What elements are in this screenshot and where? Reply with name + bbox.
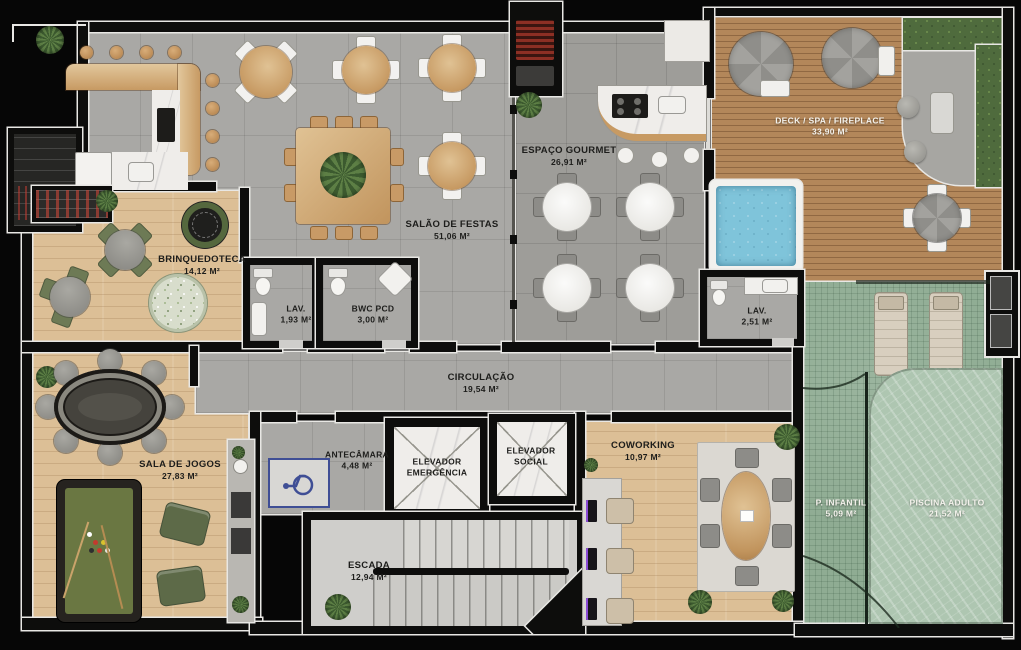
meeting-chair — [735, 448, 759, 468]
room-area: 5,09 M² — [816, 508, 867, 519]
room-label-lav-1: LAV. 1,93 M² — [281, 303, 312, 324]
floor-plan: SALÃO DE FESTAS 51,06 M² ESPAÇO GOURMET … — [0, 0, 1021, 650]
plant — [96, 190, 118, 212]
partition-post — [510, 235, 517, 244]
cabinet — [664, 20, 710, 62]
plant — [516, 92, 542, 118]
room-area: 51,06 M² — [406, 231, 499, 242]
billiard-ball — [89, 548, 94, 553]
chair — [310, 226, 328, 240]
plant — [36, 26, 64, 54]
monitor — [586, 500, 597, 522]
chair — [360, 226, 378, 240]
room-label-deck-spa-fireplace: DECK / SPA / FIREPLACE 33,90 M² — [775, 115, 885, 136]
cooktop — [157, 108, 175, 142]
umbrella — [822, 28, 882, 88]
meeting-table — [722, 472, 770, 560]
hedge — [976, 45, 1006, 187]
room-area: 14,12 M² — [158, 266, 246, 277]
wall — [190, 346, 198, 386]
room-label-elevador-emergencia: ELEVADOR EMERGÊNCIA — [400, 456, 474, 477]
pool-edge-curves — [803, 360, 1003, 628]
room-label-circulacao: CIRCULAÇÃO 19,54 M² — [448, 372, 515, 395]
door-opening — [279, 340, 303, 348]
shelf-box — [231, 492, 251, 518]
stool — [652, 152, 667, 167]
bar-stool — [140, 46, 153, 59]
room-area: 27,83 M² — [139, 471, 221, 482]
handrail — [373, 568, 569, 575]
room-label-espaco-gourmet: ESPAÇO GOURMET 26,91 M² — [522, 145, 617, 168]
room-label-piscina-adulto: PISCINA ADULTO 21,52 M² — [909, 497, 984, 518]
dining-table — [543, 183, 591, 231]
room-name: ESCADA — [348, 560, 390, 572]
papers — [740, 510, 754, 522]
chair — [390, 184, 404, 202]
room-name: SALÃO DE FESTAS — [406, 219, 499, 231]
burner — [634, 98, 641, 105]
ball-pit — [149, 274, 207, 332]
room-name: COWORKING — [611, 440, 675, 452]
plant — [232, 596, 249, 613]
vanity-sink — [251, 302, 267, 336]
room-name: SALA DE JOGOS — [139, 459, 221, 471]
wall — [22, 618, 262, 630]
room-label-bwc-pcd: BWC PCD 3,00 M² — [352, 303, 395, 324]
room-label-brinquedoteca: BRINQUEDOTECA 14,12 M² — [158, 254, 246, 277]
burner — [617, 108, 624, 115]
table-top — [913, 194, 961, 242]
deck-edge-line — [856, 280, 990, 284]
plant — [325, 594, 351, 620]
billiard-ball — [97, 548, 102, 553]
room-name: BWC PCD — [352, 303, 395, 314]
bench — [930, 92, 954, 134]
toilet — [328, 268, 348, 296]
room-label-elevador-social: ELEVADOR SOCIAL — [494, 445, 568, 466]
plant — [772, 590, 794, 612]
wall — [612, 412, 802, 422]
planter — [990, 276, 1012, 310]
meeting-chair — [700, 478, 720, 502]
dining-table — [626, 183, 674, 231]
room-name: LAV. — [281, 303, 312, 314]
room-name: DECK / SPA / FIREPLACE — [775, 115, 885, 126]
table-top — [626, 183, 674, 231]
stair-flight-upper — [403, 520, 569, 568]
room-area: 19,54 M² — [448, 384, 515, 395]
room-name: ELEVADOR EMERGÊNCIA — [400, 456, 474, 477]
deck-table — [913, 194, 961, 242]
bar-stool — [80, 46, 93, 59]
chair — [390, 148, 404, 166]
room-area: 26,91 M² — [522, 157, 617, 168]
sink — [762, 279, 788, 293]
sink — [658, 96, 686, 114]
stool — [684, 148, 699, 163]
room-name: ELEVADOR SOCIAL — [494, 445, 568, 466]
dining-table — [626, 264, 674, 312]
room-label-coworking: COWORKING 10,97 M² — [611, 440, 675, 463]
bar-stool — [206, 158, 219, 171]
accessibility-area — [268, 458, 330, 508]
meeting-chair — [700, 524, 720, 548]
wall — [502, 342, 610, 352]
dining-table — [543, 264, 591, 312]
bar-stool — [168, 46, 181, 59]
room-label-lav-2: LAV. 2,51 M² — [742, 305, 773, 326]
plant — [774, 424, 800, 450]
room-label-sala-de-jogos: SALA DE JOGOS 27,83 M² — [139, 459, 221, 482]
office-chair — [606, 598, 634, 624]
room-name: BRINQUEDOTECA — [158, 254, 246, 266]
deck-chair — [878, 46, 895, 76]
toilet — [710, 280, 728, 306]
room-area: 21,52 M² — [909, 508, 984, 519]
bar-stool — [206, 130, 219, 143]
plant — [584, 458, 598, 472]
pouf — [904, 141, 926, 163]
pool-table — [57, 480, 141, 622]
dining-table — [428, 142, 476, 190]
meeting-chair — [772, 524, 792, 548]
bar-stool — [206, 102, 219, 115]
toilet — [253, 268, 273, 296]
partition-post — [510, 170, 517, 179]
table-top — [543, 183, 591, 231]
burner — [634, 108, 641, 115]
spa-hot-tub — [710, 180, 802, 272]
room-label-escada: ESCADA 12,94 M² — [348, 560, 390, 583]
table-top — [626, 264, 674, 312]
billiard-ball — [87, 532, 92, 537]
dining-table — [342, 46, 390, 94]
wall — [240, 188, 249, 262]
planter — [990, 314, 1012, 348]
room-area: 33,90 M² — [775, 126, 885, 137]
barbecue-grill — [510, 2, 562, 96]
wheelchair-icon — [278, 466, 318, 498]
room-area: 2,51 M² — [742, 316, 773, 327]
room-area: 3,00 M² — [352, 314, 395, 325]
door-opening — [772, 338, 794, 346]
shelf-box — [231, 528, 251, 554]
armchair — [156, 565, 207, 607]
bar-stool — [110, 46, 123, 59]
headrest — [933, 296, 959, 310]
room-area: 10,97 M² — [611, 452, 675, 463]
meeting-chair — [772, 478, 792, 502]
office-chair — [606, 498, 634, 524]
headrest — [878, 296, 904, 310]
room-name: ANTECÂMARA — [325, 449, 389, 460]
stool — [618, 148, 633, 163]
room-name: P. INFANTIL — [816, 497, 867, 508]
glass-door — [706, 98, 710, 150]
room-name: PISCINA ADULTO — [909, 497, 984, 508]
grill-tray — [516, 66, 554, 86]
billiard-ball — [93, 540, 98, 545]
room-label-salao-de-festas: SALÃO DE FESTAS 51,06 M² — [406, 219, 499, 242]
burner — [617, 98, 624, 105]
bar-stool — [206, 74, 219, 87]
spa-water — [716, 186, 796, 266]
centerpiece-plant — [320, 152, 366, 198]
trampoline — [182, 202, 228, 248]
room-area: 1,93 M² — [281, 314, 312, 325]
partition-post — [510, 300, 517, 309]
monitor — [586, 548, 597, 570]
sink — [128, 162, 154, 182]
deck-chair — [760, 80, 790, 97]
plant — [688, 590, 712, 614]
wall — [78, 22, 514, 32]
staircase — [303, 512, 585, 634]
room-label-antecamara: ANTECÂMARA 4,48 M² — [325, 449, 389, 470]
cooktop — [612, 94, 648, 118]
office-chair — [606, 548, 634, 574]
room-name: CIRCULAÇÃO — [448, 372, 515, 384]
chair — [335, 226, 353, 240]
room-area: 12,94 M² — [348, 572, 390, 583]
table-top — [543, 264, 591, 312]
room-area: 4,48 M² — [325, 460, 389, 471]
games-bar-counter — [228, 440, 254, 622]
dining-table — [428, 44, 476, 92]
room-name: LAV. — [742, 305, 773, 316]
table-top — [428, 44, 476, 92]
table-top — [428, 142, 476, 190]
monitor — [586, 598, 597, 620]
wall — [706, 8, 1013, 16]
room-name: ESPAÇO GOURMET — [522, 145, 617, 157]
room-label-p-infantil: P. INFANTIL 5,09 M² — [816, 497, 867, 518]
poker-table — [54, 369, 166, 445]
pouf — [897, 96, 919, 118]
meeting-chair — [735, 566, 759, 586]
table-top — [342, 46, 390, 94]
wall — [22, 184, 32, 624]
plant — [232, 446, 245, 459]
sink — [234, 460, 247, 473]
door-opening — [382, 340, 406, 348]
kids-table — [97, 222, 154, 279]
grill-grate — [516, 20, 554, 60]
